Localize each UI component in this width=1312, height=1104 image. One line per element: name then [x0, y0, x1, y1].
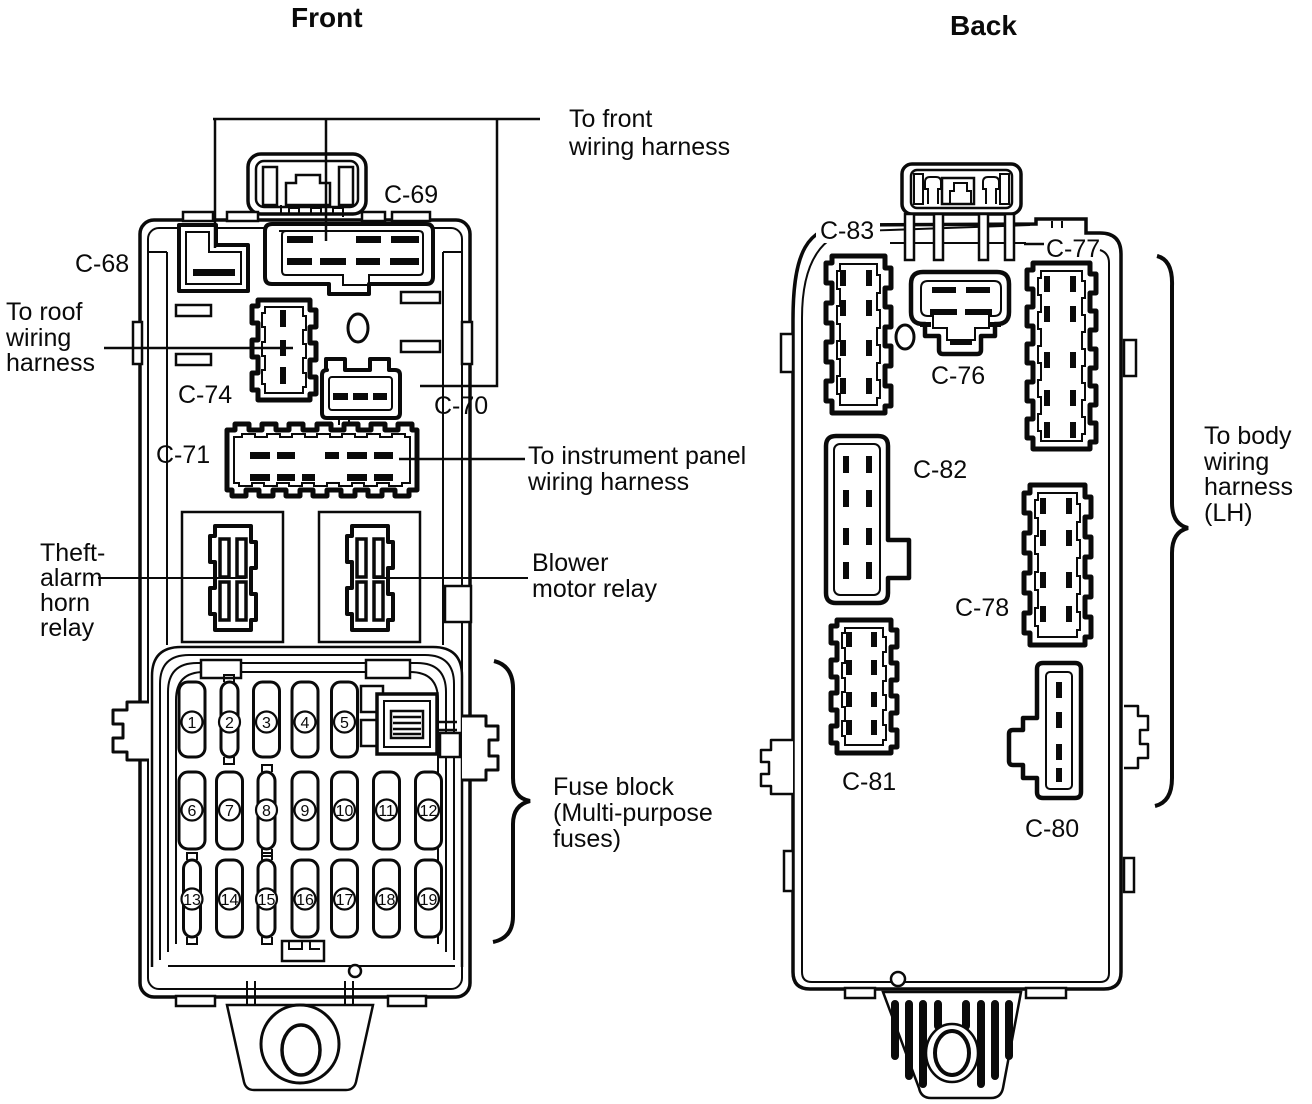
svg-text:C-76: C-76 — [931, 362, 985, 390]
svg-text:C-68: C-68 — [75, 250, 129, 278]
svg-text:C-71: C-71 — [156, 441, 210, 469]
svg-text:19: 19 — [420, 892, 438, 909]
svg-text:Blower: Blower — [532, 549, 608, 577]
svg-text:13: 13 — [183, 892, 201, 909]
svg-text:C-80: C-80 — [1025, 815, 1079, 843]
svg-text:5: 5 — [340, 715, 349, 732]
svg-text:To front: To front — [569, 105, 652, 133]
svg-text:harness: harness — [1204, 473, 1293, 501]
svg-text:fuses): fuses) — [553, 825, 621, 853]
svg-text:wiring harness: wiring harness — [568, 133, 730, 161]
svg-text:Front: Front — [291, 2, 363, 33]
svg-text:To roof: To roof — [6, 298, 82, 326]
svg-text:16: 16 — [296, 892, 314, 909]
svg-text:motor relay: motor relay — [532, 575, 658, 603]
svg-text:C-78: C-78 — [955, 594, 1009, 622]
svg-text:C-82: C-82 — [913, 456, 967, 484]
svg-text:8: 8 — [262, 803, 271, 820]
svg-text:horn: horn — [40, 589, 90, 617]
svg-text:3: 3 — [262, 715, 271, 732]
svg-text:alarm: alarm — [40, 564, 103, 592]
svg-text:C-70: C-70 — [434, 392, 488, 420]
svg-text:C-81: C-81 — [842, 768, 896, 796]
svg-text:C-74: C-74 — [178, 381, 232, 409]
svg-text:2: 2 — [225, 715, 234, 732]
svg-text:harness: harness — [6, 349, 95, 377]
svg-text:14: 14 — [221, 892, 239, 909]
svg-text:11: 11 — [378, 803, 395, 820]
svg-text:Fuse block: Fuse block — [553, 773, 674, 801]
svg-text:relay: relay — [40, 614, 95, 642]
svg-text:(LH): (LH) — [1204, 499, 1253, 527]
svg-text:(Multi-purpose: (Multi-purpose — [553, 799, 713, 827]
svg-text:wiring: wiring — [5, 324, 71, 352]
svg-text:4: 4 — [301, 715, 310, 732]
svg-text:To body: To body — [1204, 422, 1292, 450]
svg-text:12: 12 — [420, 803, 438, 820]
svg-text:C-69: C-69 — [384, 181, 438, 209]
svg-text:1: 1 — [188, 715, 197, 732]
svg-text:wiring: wiring — [1203, 448, 1269, 476]
svg-text:17: 17 — [336, 892, 354, 909]
svg-text:Theft-: Theft- — [40, 539, 105, 567]
svg-text:Back: Back — [950, 10, 1017, 41]
svg-text:15: 15 — [258, 892, 276, 909]
svg-text:C-83: C-83 — [820, 217, 874, 245]
svg-text:wiring harness: wiring harness — [527, 468, 689, 496]
svg-text:7: 7 — [225, 803, 234, 820]
svg-text:C-77: C-77 — [1046, 235, 1100, 263]
svg-text:10: 10 — [336, 803, 354, 820]
svg-text:To instrument panel: To instrument panel — [528, 442, 746, 470]
svg-text:18: 18 — [378, 892, 396, 909]
svg-text:9: 9 — [301, 803, 310, 820]
svg-text:6: 6 — [188, 803, 197, 820]
